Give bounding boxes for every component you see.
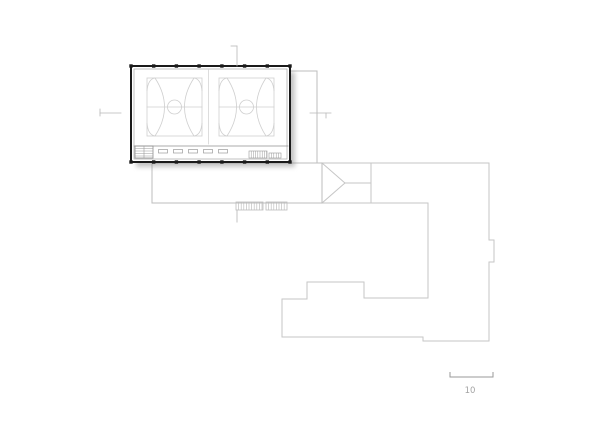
drawing-sheet: 10 [0, 0, 600, 424]
gym-building [129, 64, 291, 163]
site-plan-canvas: 10 [0, 0, 600, 424]
gym-walls [131, 66, 290, 162]
paper-background [0, 0, 600, 424]
scale-bar-label: 10 [465, 386, 476, 396]
